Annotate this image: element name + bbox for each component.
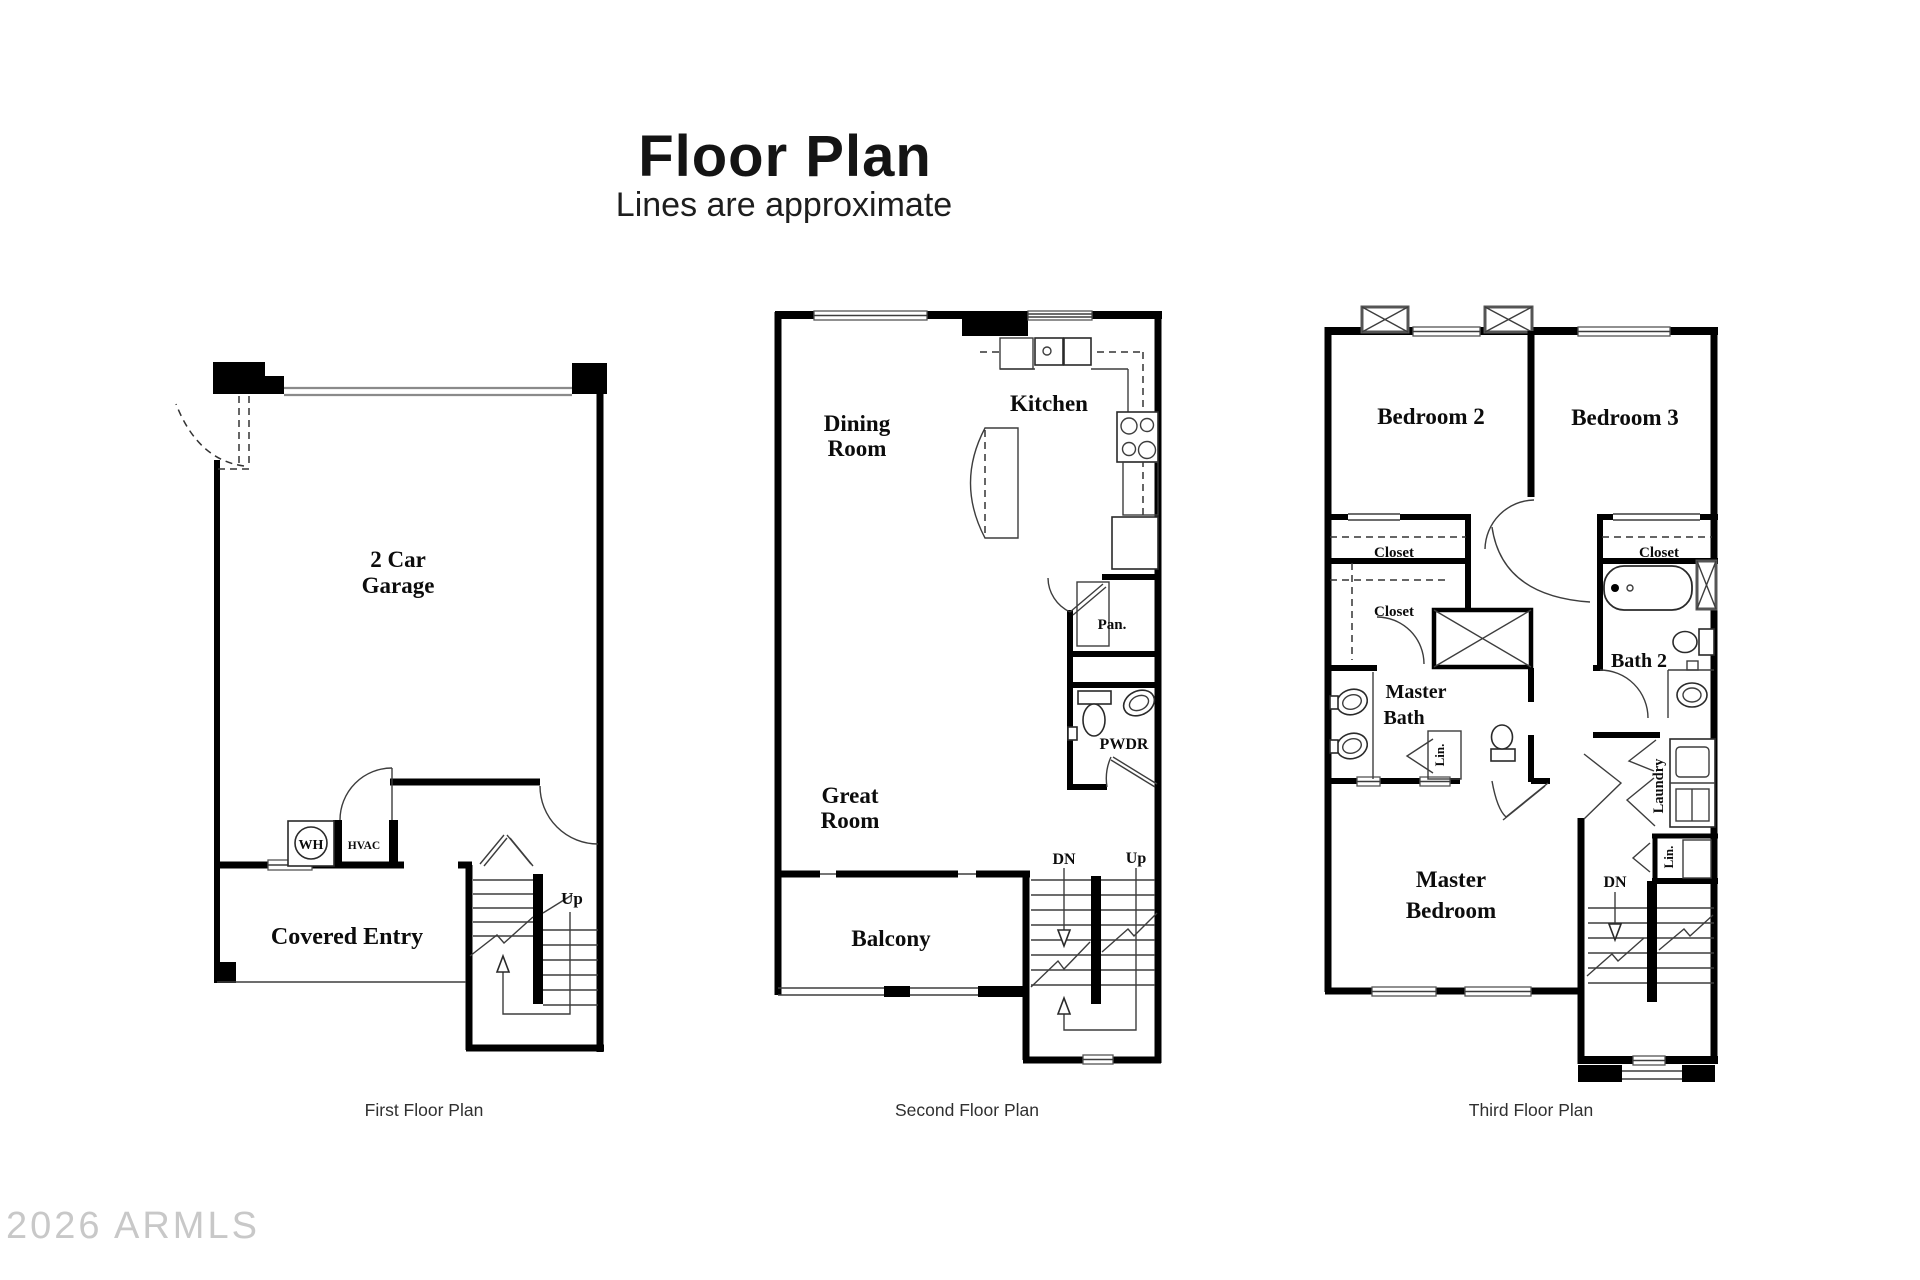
second-floor-stairs (1031, 868, 1157, 1030)
page-title: Floor Plan (638, 124, 932, 189)
garage-label-line-1: 2 Car (370, 547, 426, 572)
closet-label-2: Closet (1374, 604, 1414, 620)
third-floor-caption: Third Floor Plan (1469, 1100, 1594, 1120)
linen-label-2: Lin. (1661, 846, 1676, 869)
toilet-bowl (1673, 632, 1697, 653)
dn-label-third: DN (1603, 874, 1627, 891)
balcony-railing (778, 986, 1026, 997)
hvac-label: HVAC (348, 840, 380, 852)
kitchen-label: Kitchen (1010, 391, 1088, 416)
toilet-tank (1491, 749, 1515, 761)
master-bedroom-label-line-2: Bedroom (1406, 898, 1496, 923)
title-block: Floor Plan Lines are approximate (616, 124, 952, 224)
dn-label-second: DN (1052, 851, 1076, 868)
bath2-fixtures (1604, 561, 1716, 718)
laundry-label: Laundry (1651, 758, 1667, 814)
second-floor-plan: Dining Room Kitchen Pan. PWDR Great Room… (775, 311, 1162, 1120)
first-floor-caption: First Floor Plan (365, 1100, 484, 1120)
sink (1119, 685, 1158, 720)
master-bedroom-label-line-1: Master (1416, 867, 1486, 892)
second-floor-caption: Second Floor Plan (895, 1100, 1039, 1120)
bedroom3-label: Bedroom 3 (1571, 405, 1679, 430)
master-bath-label-line-2: Bath (1383, 707, 1424, 729)
laundry-fixtures (1670, 739, 1715, 878)
dining-room-label-line-2: Room (828, 436, 887, 461)
up-label-second: Up (1126, 850, 1147, 867)
great-room-label-line-1: Great (821, 783, 878, 808)
toilet-tank (1699, 629, 1714, 655)
water-heater-unit: WH (288, 821, 334, 866)
sink (1333, 729, 1370, 762)
covered-entry-label: Covered Entry (271, 924, 423, 950)
toilet-bowl (1083, 704, 1105, 736)
toilet-tank (1078, 691, 1111, 704)
up-label-first: Up (561, 889, 583, 908)
closet-label-1: Closet (1374, 545, 1414, 561)
wh-label: WH (299, 838, 324, 853)
balcony-label: Balcony (851, 926, 931, 951)
dining-room-label-line-1: Dining (824, 411, 891, 436)
pantry-label: Pan. (1098, 617, 1127, 633)
toilet-bowl (1492, 725, 1513, 749)
up-arrow (497, 956, 509, 972)
floor-plan-page: Floor Plan Lines are approximate (0, 0, 1920, 1280)
bedroom2-label: Bedroom 2 (1377, 404, 1485, 429)
shower-stall (1434, 610, 1531, 667)
closet-label-3: Closet (1639, 545, 1679, 561)
third-floor-plan: Bedroom 2 Bedroom 3 Closet Closet Closet… (1325, 307, 1718, 1120)
third-floor-stairs (1578, 881, 1718, 1082)
linen-label-1: Lin. (1432, 744, 1447, 767)
powder-room-label: PWDR (1100, 736, 1149, 753)
bath2-label: Bath 2 (1611, 650, 1667, 672)
stove (1117, 412, 1158, 462)
garage-label-line-2: Garage (362, 573, 435, 598)
kitchen-island (971, 428, 1019, 538)
page-subtitle: Lines are approximate (616, 186, 952, 224)
dn-arrow (1058, 930, 1070, 946)
sink (1677, 683, 1707, 707)
master-bath-label-line-1: Master (1385, 681, 1446, 703)
floor-plan-figure: Floor Plan Lines are approximate (0, 0, 1920, 1280)
first-floor-plan: WH 2 Car Garage HVAC Covered Entry Up Fi… (176, 362, 607, 1120)
garage-service-door (176, 396, 252, 469)
pantry (1048, 578, 1109, 646)
sink (1333, 685, 1370, 718)
great-room-label-line-2: Room (821, 808, 880, 833)
kitchen-fixtures (971, 338, 1159, 569)
up-arrow (1058, 998, 1070, 1014)
refrigerator (1112, 517, 1158, 569)
watermark: 2026 ARMLS (6, 1205, 260, 1247)
